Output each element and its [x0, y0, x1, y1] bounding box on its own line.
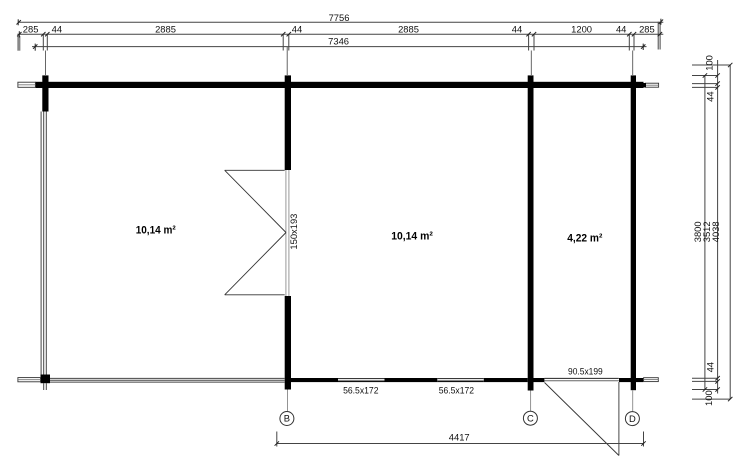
svg-text:100: 100: [703, 390, 714, 406]
svg-text:44: 44: [512, 24, 522, 35]
svg-text:285: 285: [23, 24, 39, 35]
svg-text:2885: 2885: [398, 24, 419, 35]
svg-text:7346: 7346: [328, 35, 349, 46]
svg-text:2885: 2885: [155, 24, 176, 35]
svg-text:56.5x172: 56.5x172: [439, 384, 474, 395]
svg-text:44: 44: [704, 362, 715, 372]
svg-text:1200: 1200: [571, 24, 592, 35]
svg-text:10,14 m²: 10,14 m²: [136, 225, 176, 237]
svg-text:44: 44: [52, 24, 62, 35]
svg-text:150x193: 150x193: [288, 214, 299, 250]
svg-text:44: 44: [616, 24, 626, 35]
svg-text:90.5x199: 90.5x199: [568, 365, 603, 376]
svg-text:4038: 4038: [710, 221, 721, 242]
svg-text:4417: 4417: [449, 432, 470, 443]
svg-text:44: 44: [704, 91, 715, 101]
svg-text:7756: 7756: [329, 12, 350, 23]
svg-text:285: 285: [639, 24, 655, 35]
svg-text:4,22 m²: 4,22 m²: [567, 232, 602, 244]
svg-text:B: B: [284, 413, 290, 424]
svg-text:D: D: [629, 413, 636, 424]
svg-text:C: C: [527, 412, 534, 423]
svg-text:44: 44: [292, 24, 302, 35]
svg-text:10,14 m²: 10,14 m²: [391, 231, 433, 243]
svg-text:100: 100: [704, 55, 715, 71]
svg-text:56.5x172: 56.5x172: [343, 384, 378, 395]
